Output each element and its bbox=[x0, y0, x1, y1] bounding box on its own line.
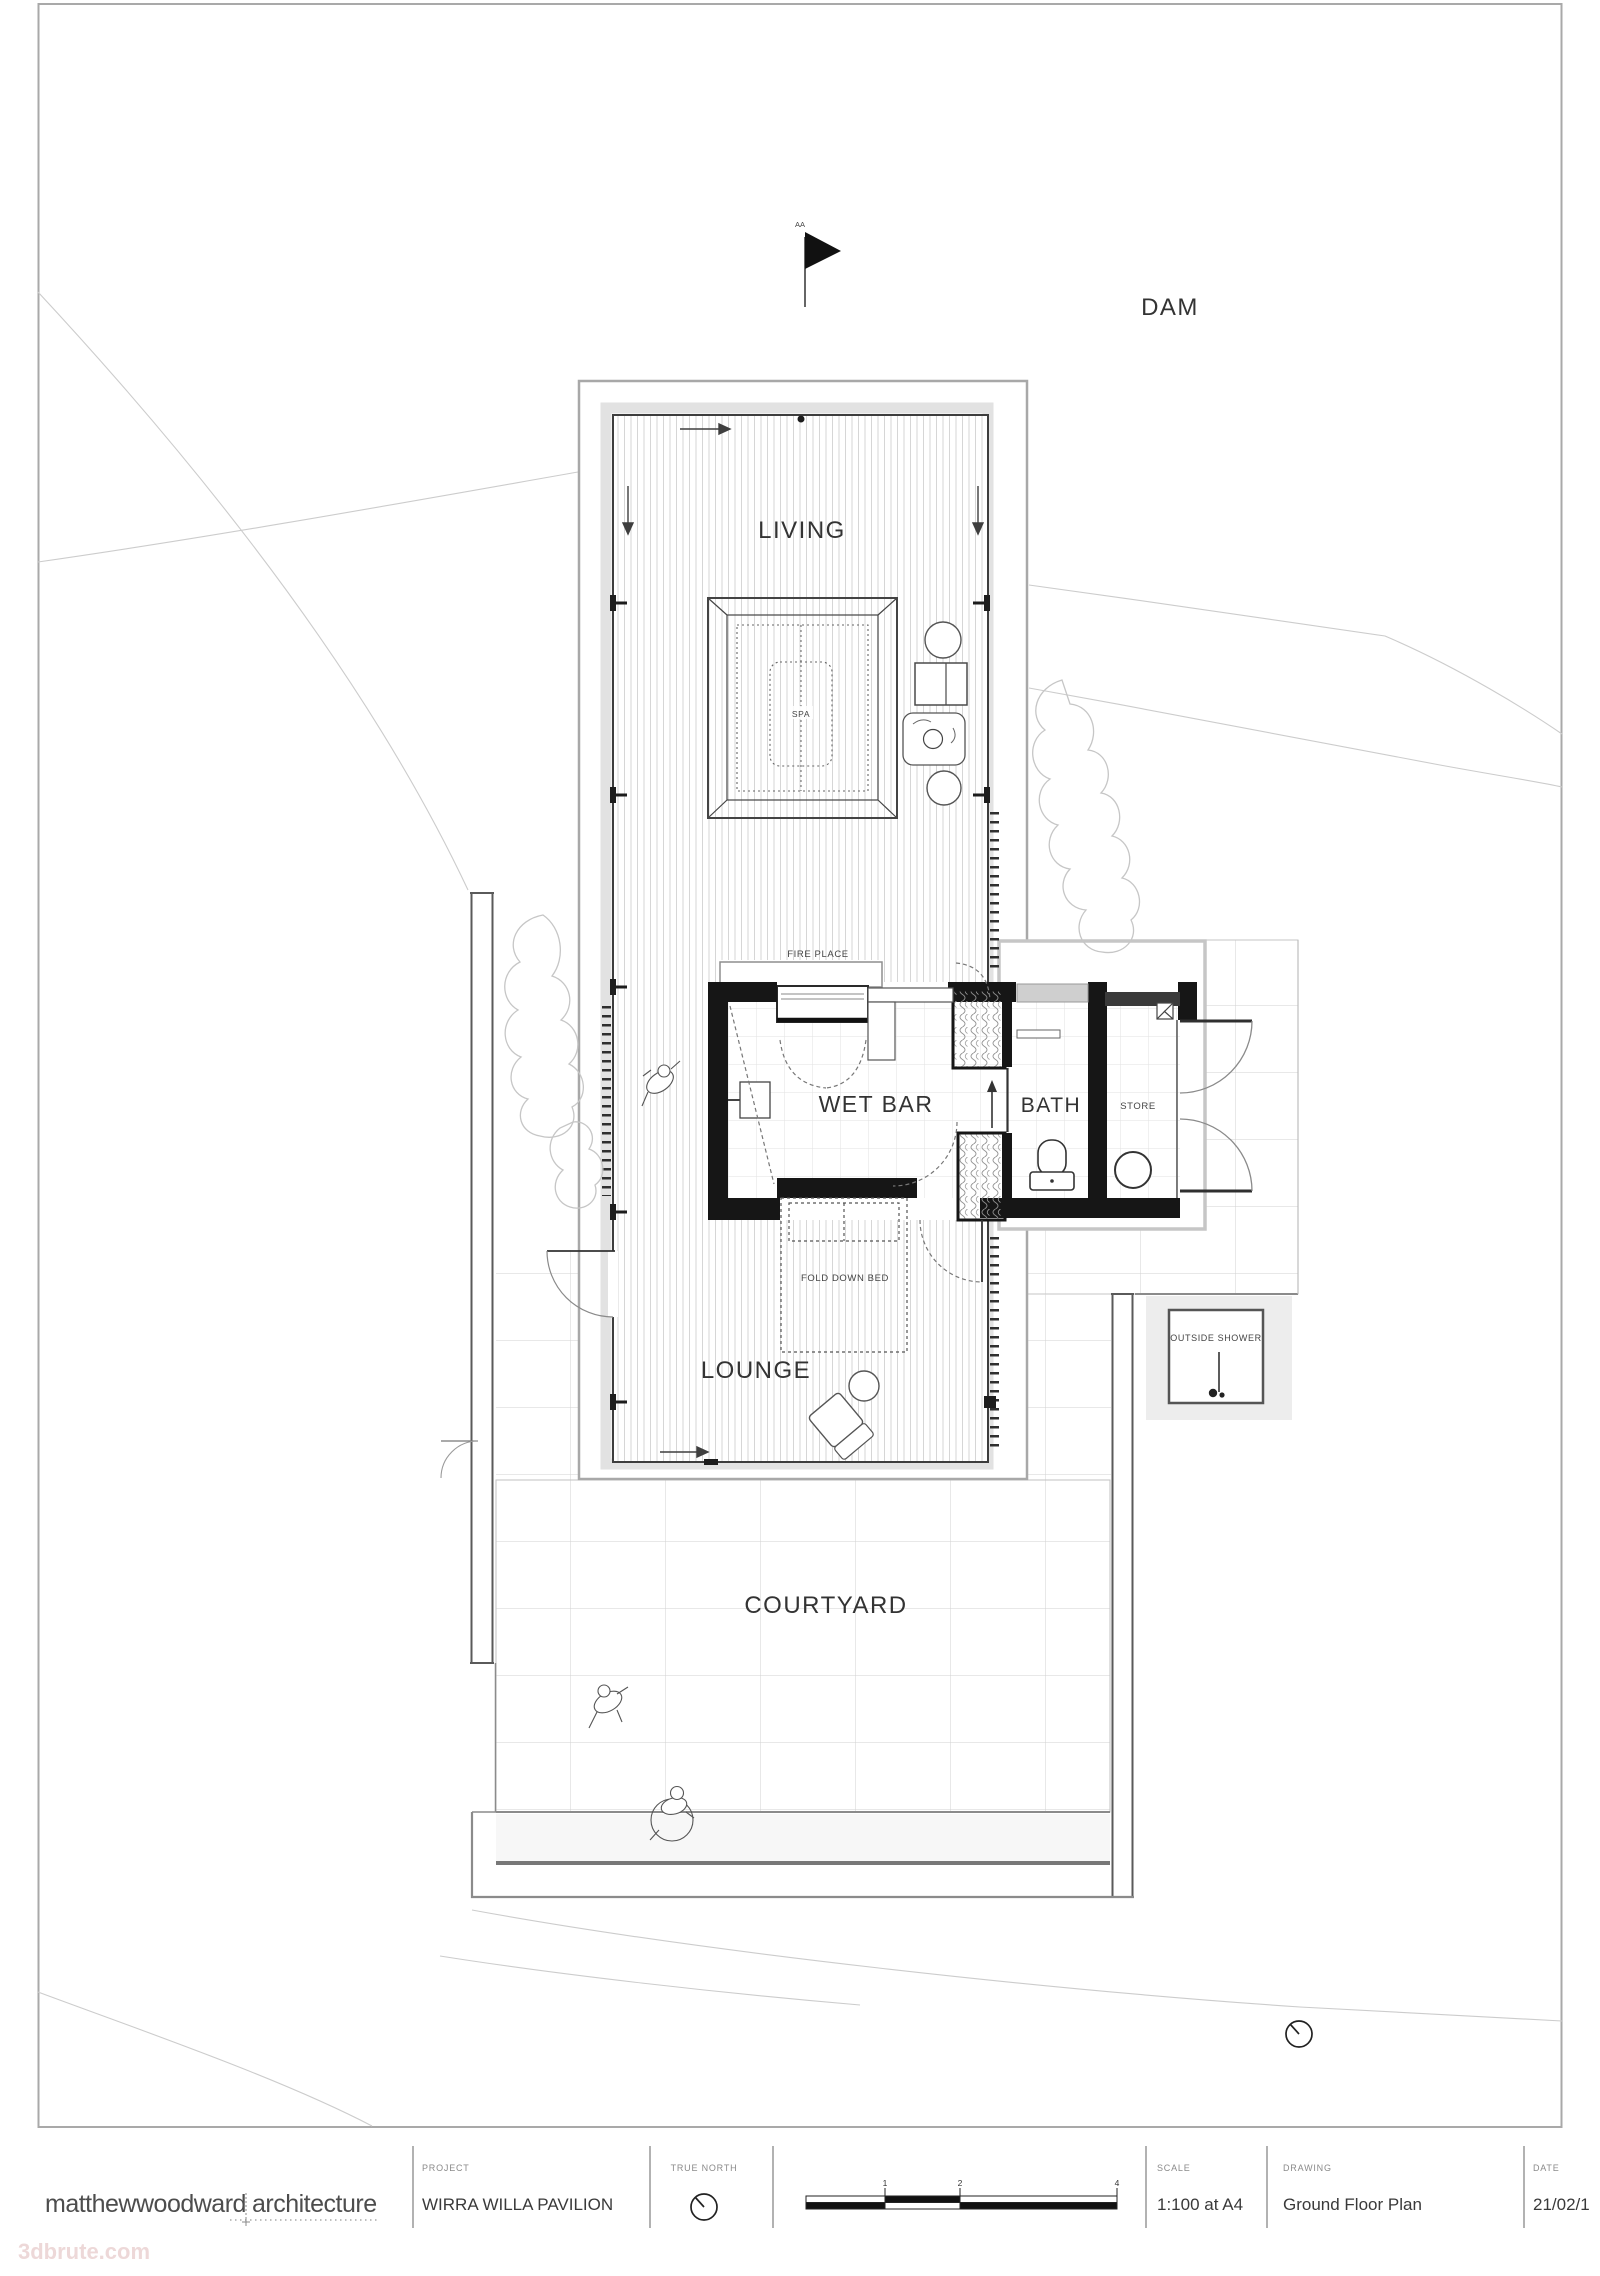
drawing-sheet: SPA bbox=[0, 0, 1600, 2276]
seated-person bbox=[903, 713, 965, 765]
store-label: STORE bbox=[1120, 1101, 1156, 1112]
courtyard-grid bbox=[496, 1480, 1110, 1812]
outside-shower bbox=[1146, 1296, 1292, 1420]
section-marker-label: AA bbox=[795, 220, 805, 229]
date-label: DATE bbox=[1533, 2163, 1560, 2173]
round-table bbox=[925, 622, 961, 658]
project-label: PROJECT bbox=[422, 2163, 470, 2173]
scale-label: SCALE bbox=[1157, 2163, 1191, 2173]
fireplace-label: FIRE PLACE bbox=[787, 949, 848, 960]
firm-name-left: matthewwoodward bbox=[45, 2190, 246, 2218]
outside-shower-label: OUTSIDE SHOWER bbox=[1170, 1333, 1261, 1343]
project-value: WIRRA WILLA PAVILION bbox=[422, 2195, 613, 2214]
bath-label: BATH bbox=[1021, 1094, 1081, 1117]
wall-shelf bbox=[740, 1082, 770, 1118]
firm-name-right: architecture bbox=[252, 2190, 377, 2218]
spa-label: SPA bbox=[792, 709, 810, 719]
round-table bbox=[927, 771, 961, 805]
north-arrow-icon bbox=[1286, 2021, 1312, 2047]
scale-tick-1: 1 bbox=[883, 2178, 888, 2188]
drawing-label: DRAWING bbox=[1283, 2163, 1332, 2173]
lounge-label: LOUNGE bbox=[701, 1357, 811, 1384]
fold-down-bed-label: FOLD DOWN BED bbox=[801, 1273, 889, 1284]
deck-boards bbox=[613, 415, 988, 1462]
living-label: LIVING bbox=[758, 517, 846, 544]
true-north-label: TRUE NORTH bbox=[671, 2163, 738, 2173]
round-table bbox=[849, 1371, 879, 1401]
watermark-text: 3dbrute.com bbox=[18, 2239, 150, 2264]
date-value: 21/02/1 bbox=[1533, 2195, 1590, 2214]
drawing-value: Ground Floor Plan bbox=[1283, 2195, 1422, 2214]
wet-bar-label: WET BAR bbox=[819, 1091, 934, 1117]
cabinet bbox=[915, 663, 967, 705]
outside-shower-box bbox=[1169, 1310, 1263, 1403]
dam-label: DAM bbox=[1141, 294, 1199, 321]
scale-tick-4: 4 bbox=[1115, 2178, 1120, 2188]
bath-glazing bbox=[1017, 984, 1088, 1002]
scale-tick-2: 2 bbox=[958, 2178, 963, 2188]
bath-shelf bbox=[1017, 1030, 1060, 1038]
ground-floor-plan-svg: SPA bbox=[0, 0, 1600, 2276]
door-closer-icon bbox=[1157, 1003, 1173, 1019]
water-tank-icon bbox=[1115, 1152, 1151, 1188]
true-north-icon bbox=[691, 2194, 717, 2220]
scale-value: 1:100 at A4 bbox=[1157, 2195, 1243, 2214]
pavilion bbox=[579, 381, 1027, 1479]
courtyard-label: COURTYARD bbox=[744, 1592, 907, 1619]
